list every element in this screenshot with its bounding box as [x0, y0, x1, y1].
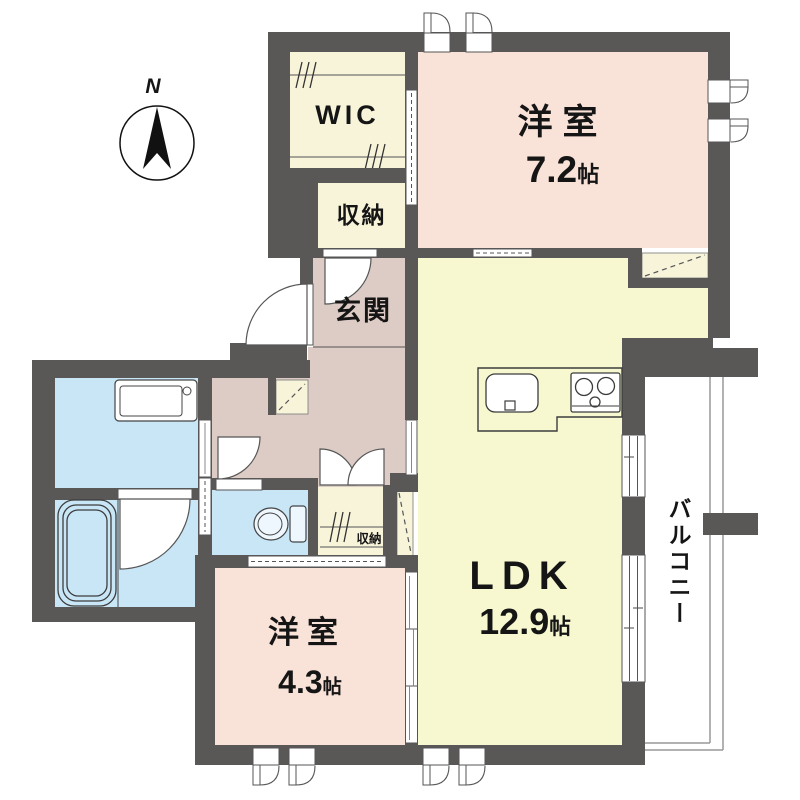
bathroom-door-opening: [118, 489, 192, 499]
window: [708, 119, 730, 142]
window-leaf: [730, 80, 748, 87]
bedroom-4-3-size: 4.3帖: [222, 666, 398, 700]
wall: [622, 338, 713, 377]
balcony-window-north: [622, 435, 645, 497]
wall: [32, 360, 310, 378]
wic-label: WIC: [290, 101, 405, 129]
window-leaf: [424, 13, 431, 33]
compass-needle-icon: [143, 107, 171, 169]
window-leaf: [459, 765, 466, 785]
window: [289, 748, 315, 765]
window-leaf: [466, 13, 473, 33]
entry-door-swing: [246, 284, 307, 345]
bedroom-4-3-name: 洋室: [222, 617, 392, 650]
bedroom43-ldk-sliding-door: [406, 572, 418, 743]
bedroom-7-2-size-value: 7.2: [526, 149, 577, 190]
wall: [405, 555, 418, 572]
compass-north-label: N: [138, 76, 168, 98]
compass: [120, 106, 194, 180]
bedroom-7-2-size-unit: 帖: [577, 162, 599, 187]
wall: [32, 607, 198, 622]
wall: [713, 348, 758, 377]
window: [459, 748, 485, 765]
window: [708, 80, 730, 103]
window: [466, 33, 492, 52]
washbasin-faucet: [183, 387, 191, 395]
window-leaf: [289, 765, 296, 785]
entrance-label: 玄関: [315, 297, 411, 325]
window: [253, 748, 279, 765]
wall: [628, 253, 642, 288]
wall: [195, 555, 215, 765]
toilet-tank: [290, 506, 306, 542]
window-leaf: [423, 765, 430, 785]
balcony-label: バルコニー: [662, 472, 690, 652]
floor-plan: N WIC 収納 玄関 洋室 7.2帖 LDK 12.9帖 洋室 4.3帖 収納…: [0, 0, 800, 800]
window: [424, 33, 450, 52]
window: [423, 748, 449, 765]
bedroom-4-3-size-unit: 帖: [323, 677, 342, 698]
wall: [405, 248, 418, 420]
bedroom-4-3-size-value: 4.3: [278, 664, 322, 700]
hall-closet-label: 収納: [318, 203, 405, 227]
wall: [268, 378, 276, 415]
toilet-door: [216, 479, 262, 490]
wall: [383, 485, 397, 557]
room-bedroom-4-3-floor: [215, 568, 405, 745]
wall: [32, 360, 55, 622]
ldk-size: 12.9帖: [420, 603, 630, 641]
shoe-closet-opening: [323, 249, 377, 257]
bedroom-7-2-size: 7.2帖: [430, 151, 695, 190]
wall: [308, 478, 318, 557]
room-ldk-floor-ext: [628, 288, 708, 338]
bedroom-7-2-name: 洋室: [430, 105, 695, 142]
balcony-divider-wall: [703, 513, 758, 535]
window-leaf: [253, 765, 260, 785]
wall: [405, 743, 418, 765]
wall: [268, 32, 290, 253]
wall: [642, 278, 708, 288]
wall: [405, 475, 418, 492]
ldk-name: LDK: [420, 555, 625, 597]
bedroom72-ldk-sliding-door: [473, 249, 532, 257]
wall: [300, 253, 313, 284]
wall: [290, 168, 318, 258]
bedroom-closet-label: 収納: [352, 533, 386, 546]
ldk-size-value: 12.9: [479, 601, 549, 642]
wall: [268, 32, 730, 52]
window-leaf: [730, 119, 748, 126]
ldk-size-unit: 帖: [549, 614, 571, 639]
room-ldk-floor: [418, 258, 628, 745]
kitchen-sink: [486, 374, 538, 412]
